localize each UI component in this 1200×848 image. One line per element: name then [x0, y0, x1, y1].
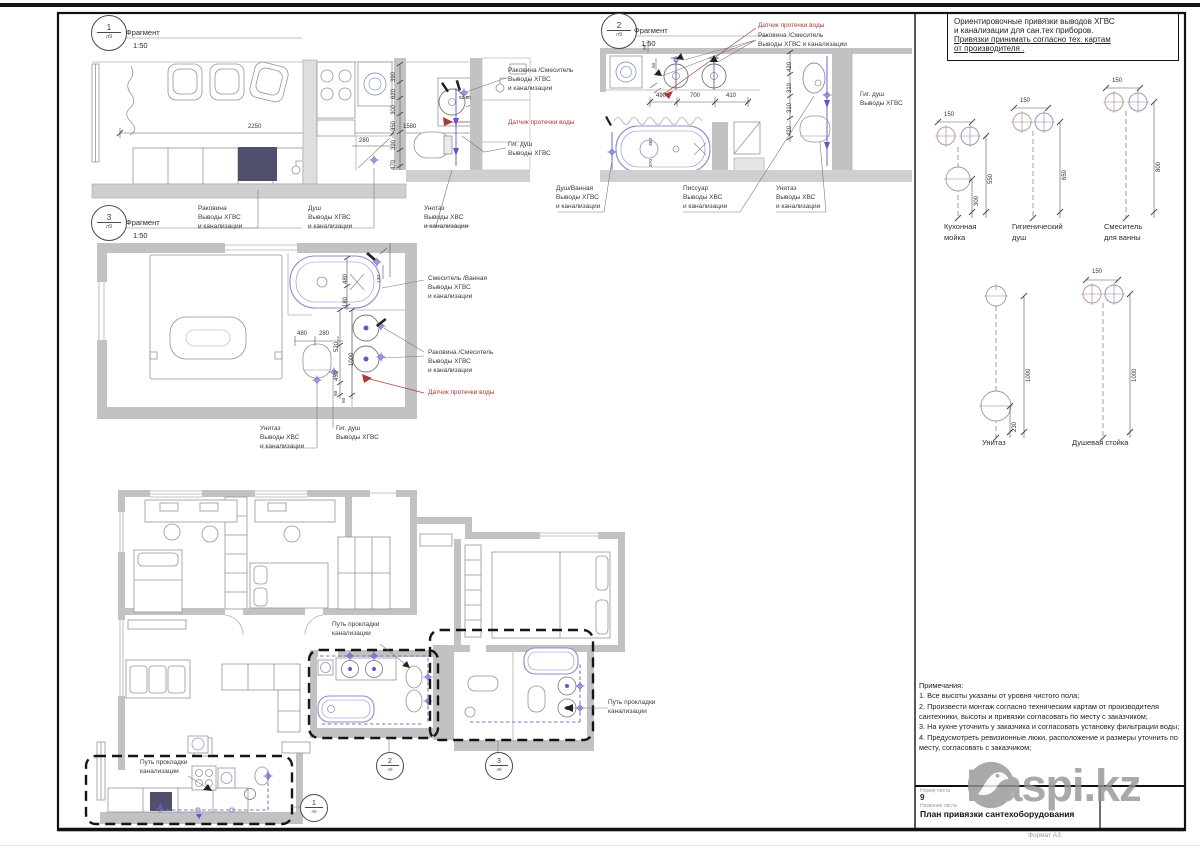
dim: 300 — [974, 196, 980, 206]
sheet-name: План привязки сантехоборудования — [920, 809, 1074, 819]
dim: 520 — [334, 342, 340, 352]
dim: 150 — [1112, 78, 1122, 84]
fragment-number: 3 — [97, 206, 121, 223]
dim: 130 — [377, 275, 382, 283]
note-line: и канализации для сан.тех приборов. — [954, 26, 1178, 35]
page-edge-line — [0, 845, 1200, 846]
fragment-2-title: Фрагмент — [634, 26, 668, 37]
fragment-number: 2 — [607, 14, 631, 31]
callout-leak-sensor: Датчик протечки воды — [758, 21, 824, 30]
fragment-sheet: л9 — [106, 223, 112, 230]
dim: 150 — [944, 112, 954, 118]
callout-hygienic-shower: Гиг. душ Выводы ХГВС — [860, 90, 903, 108]
ref-number: 3 — [490, 753, 508, 766]
dim: 490 — [656, 93, 666, 99]
fragment-2-marker: 2 л9 — [601, 13, 637, 49]
callout-leak-sensor: Датчик протечки воды — [508, 118, 574, 127]
dim: 150 — [1020, 98, 1030, 104]
callout-hygienic-shower: Гиг. душ Выводы ХГВС — [336, 424, 379, 442]
fragment-3-plan — [97, 243, 424, 448]
dim: 420 — [787, 126, 793, 136]
dim: 390 — [391, 72, 397, 82]
callout-wc: Унитаз Выводы ХВС и канализации — [424, 204, 468, 232]
dim: 650 — [1062, 170, 1068, 180]
sheet-number-label: Номер листа — [920, 788, 950, 794]
dim: 2250 — [248, 124, 261, 130]
fragment-1-elevation — [92, 58, 532, 228]
callout-wc: Унитаз Выводы ХВС и канализации — [260, 424, 304, 452]
fragment-1-marker: 1 л9 — [91, 15, 127, 51]
sheet-number: 9 — [920, 793, 924, 802]
dim: 150 — [1092, 269, 1102, 275]
dim: 50 — [342, 398, 347, 403]
callout-urinal: Писсуар Выводы ХВС и канализации — [683, 184, 727, 212]
fixture-label-shower-stand: Душевая стойка — [1072, 438, 1128, 449]
dim: 300 — [391, 105, 397, 115]
note-line: от производителя . — [954, 44, 1178, 53]
callout-sink: Раковина Выводы ХГВС и канализации — [198, 204, 242, 232]
callout-sink-mixer: Раковина /Смеситель Выводы ХГВС и канали… — [758, 31, 847, 49]
ref-number: 1 — [305, 795, 323, 808]
dim: 470 — [391, 160, 397, 170]
note-item: 2. Произвести монтаж согласно технически… — [919, 702, 1181, 723]
fragment-1-scale: 1:50 — [133, 41, 148, 52]
ref-sheet: л9 — [387, 766, 392, 772]
callout-wc: Унитаз Выводы ХВС и канализации — [776, 184, 820, 212]
fragment-sheet: л9 — [106, 33, 112, 40]
dim: 50 50 — [459, 96, 471, 101]
callout-sink-mixer: Раковина /Смеситель Выводы ХГВС и канали… — [508, 66, 573, 94]
general-note-box: Ориентировочные привязки выводов ХГВС и … — [947, 13, 1179, 61]
dim: 480 — [297, 331, 307, 337]
dim: 480 — [343, 274, 349, 284]
fragment-3-marker: 3 л9 — [91, 205, 127, 241]
dim: 50 — [334, 391, 339, 396]
callout-sewer-path: Путь прокладки канализации — [332, 620, 379, 638]
dim: 1000 — [1026, 369, 1032, 382]
dim: 410 — [726, 93, 736, 99]
note-item: 4. Предусмотреть ревизионные люки, распо… — [919, 733, 1181, 754]
dim: 310 — [787, 103, 793, 113]
callout-sewer-path: Путь прокладки канализации — [140, 758, 187, 776]
ref-sheet: л9 — [496, 766, 501, 772]
fragment-3-scale: 1:50 — [133, 231, 148, 242]
note-line: Привязки принимать согласно тех. картам — [954, 35, 1178, 44]
fragment-3-title: Фрагмент — [126, 218, 160, 229]
dim: 1000 — [349, 353, 355, 366]
ref-sheet: л9 — [311, 808, 316, 814]
dim: 550 — [988, 174, 994, 184]
dim: 360 — [649, 138, 654, 146]
fragment-sheet: л9 — [616, 31, 622, 38]
callout-hygienic-shower: Гиг. душ Выводы ХГВС — [508, 140, 551, 158]
callout-bath-shower: Душ/Ванная Выводы ХГВС и канализации — [556, 184, 600, 212]
dim: 620 — [391, 89, 397, 99]
drawing-sheet: 1 л9 Фрагмент 1:50 2 л9 Фрагмент 1:50 3 … — [0, 0, 1200, 848]
plan-ref-1: 1 л9 — [300, 794, 328, 822]
fixture-diagrams — [935, 85, 1157, 441]
notes-title: Примечания: — [919, 681, 1181, 691]
dim: 1580 — [403, 124, 416, 130]
plan-ref-3: 3 л9 — [485, 752, 513, 780]
fixture-label-kitchen-sink: Кухонная мойка — [944, 222, 976, 243]
dim: 180 — [343, 297, 349, 307]
note-item: 3. На кухне уточнить у заказчика и согла… — [919, 722, 1181, 732]
dim: 420 — [787, 62, 793, 72]
ref-number: 2 — [381, 753, 399, 766]
callout-shower: Душ Выводы ХГВС и канализации — [308, 204, 352, 232]
fragment-2-elevation — [558, 28, 912, 212]
fragment-1-title: Фрагмент — [126, 28, 160, 39]
dim: 370 — [649, 159, 654, 167]
dim: 280 — [319, 331, 329, 337]
dim: 450 — [334, 371, 340, 381]
callout-sink-mixer: Раковина /Смеситель Выводы ХГВС и канали… — [428, 348, 493, 376]
plan-ref-2: 2 л9 — [376, 752, 404, 780]
dim: 1000 — [1132, 369, 1138, 382]
callout-sewer-path: Путь прокладки канализации — [608, 698, 655, 716]
dim: 800 — [1156, 162, 1162, 172]
note-line: Ориентировочные привязки выводов ХГВС — [954, 17, 1178, 26]
fixture-label-toilet: Унитаз — [982, 438, 1006, 449]
dim: 280 — [359, 138, 369, 144]
dim: 700 — [690, 93, 700, 99]
note-item: 1. Все высоты указаны от уровня чистого … — [919, 691, 1181, 701]
fixture-label-hygienic-shower: Гигиенический душ — [1012, 222, 1063, 243]
fixture-label-bath-mixer: Смеситель для ванны — [1104, 222, 1142, 243]
dim: 350 — [391, 121, 397, 131]
dim: 230 — [1012, 422, 1018, 432]
callout-mixer-bath: Смеситель /Ванная Выводы ХГВС и канализа… — [428, 274, 487, 302]
fragment-number: 1 — [97, 16, 121, 33]
dim: 310 — [787, 83, 793, 93]
notes-block: Примечания: 1. Все высоты указаны от уро… — [919, 681, 1181, 754]
dim: 50 — [652, 63, 657, 68]
dim: 50 — [643, 45, 648, 50]
callout-leak-sensor: Датчик протечки воды — [428, 388, 494, 397]
dim: 390 — [391, 140, 397, 150]
format-label: Формат А3 — [1028, 832, 1061, 839]
